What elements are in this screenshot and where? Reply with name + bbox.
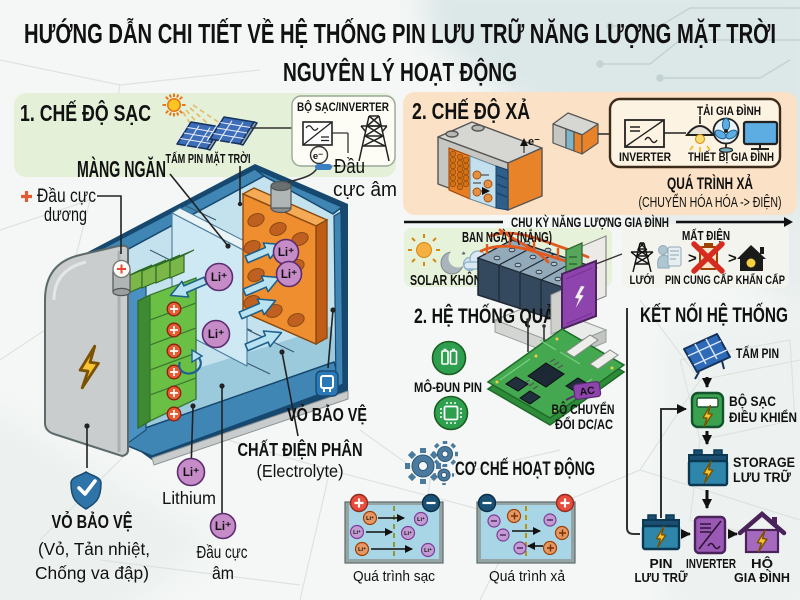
svg-text:THIẾT BỊ GIA ĐÌNH: THIẾT BỊ GIA ĐÌNH <box>688 149 774 164</box>
svg-text:CHU KỲ NĂNG LƯỢNG GIA ĐÌNH: CHU KỲ NĂNG LƯỢNG GIA ĐÌNH <box>511 215 669 230</box>
svg-text:LƯU TRỮ: LƯU TRỮ <box>733 470 792 485</box>
svg-text:BỘ SẠC: BỘ SẠC <box>729 394 776 409</box>
svg-text:e⁻: e⁻ <box>528 136 540 148</box>
svg-text:Đầu cực: Đầu cực <box>197 542 248 562</box>
svg-text:STORAGE: STORAGE <box>733 455 795 470</box>
svg-text:Li⁺: Li⁺ <box>208 329 224 341</box>
svg-text:BỘ CHUYỂN: BỘ CHUYỂN <box>552 400 615 417</box>
svg-text:MÀNG NGĂN: MÀNG NGĂN <box>77 155 166 182</box>
svg-text:(Vỏ, Tản nhiệt,: (Vỏ, Tản nhiệt, <box>38 539 150 559</box>
svg-text:AC: AC <box>579 384 596 398</box>
svg-text:Li⁺: Li⁺ <box>358 546 366 553</box>
svg-text:INVERTER: INVERTER <box>619 150 671 164</box>
svg-text:(Electrolyte): (Electrolyte) <box>257 461 344 481</box>
svg-text:NGUYÊN LÝ HOẠT ĐỘNG: NGUYÊN LÝ HOẠT ĐỘNG <box>283 57 517 87</box>
svg-text:Li⁺: Li⁺ <box>215 521 231 533</box>
svg-text:Quá trình xả: Quá trình xả <box>489 569 566 585</box>
svg-text:LƯỚI: LƯỚI <box>630 272 655 287</box>
svg-text:VỎ BẢO VỆ: VỎ BẢO VỆ <box>287 404 367 425</box>
svg-text:Lithium: Lithium <box>162 488 216 508</box>
svg-text:INVERTER: INVERTER <box>686 557 736 571</box>
svg-text:dương: dương <box>44 205 87 226</box>
svg-text:Li⁺: Li⁺ <box>281 269 297 281</box>
svg-text:Li⁺: Li⁺ <box>353 529 361 536</box>
svg-text:Li⁺: Li⁺ <box>366 515 374 522</box>
svg-text:Li⁺: Li⁺ <box>183 467 199 479</box>
svg-text:HƯỚNG DẪN CHI TIẾT VỀ HỆ THỐNG: HƯỚNG DẪN CHI TIẾT VỀ HỆ THỐNG PIN LƯU T… <box>24 17 776 49</box>
svg-text:1. CHẾ ĐỘ SẠC: 1. CHẾ ĐỘ SẠC <box>20 99 151 126</box>
svg-text:CHẤT ĐIỆN PHÂN: CHẤT ĐIỆN PHÂN <box>238 439 363 460</box>
svg-text:HỘ: HỘ <box>751 556 773 571</box>
svg-text:CƠ CHẾ HOẠT ĐỘNG: CƠ CHẾ HOẠT ĐỘNG <box>455 458 595 480</box>
svg-text:QUÁ TRÌNH XẢ: QUÁ TRÌNH XẢ <box>667 174 753 193</box>
svg-text:Li⁺: Li⁺ <box>211 272 227 284</box>
svg-text:Đầu cực: Đầu cực <box>37 186 96 207</box>
svg-text:e⁻: e⁻ <box>313 151 323 162</box>
svg-text:BAN NGÀY (NẮNG): BAN NGÀY (NẮNG) <box>462 228 552 246</box>
svg-text:Li⁺: Li⁺ <box>278 247 294 259</box>
svg-text:BỘ SẠC/INVERTER: BỘ SẠC/INVERTER <box>297 99 389 114</box>
svg-text:>: > <box>728 250 737 267</box>
svg-text:cực âm: cực âm <box>333 179 397 201</box>
svg-text:ĐIỀU KHIỂN: ĐIỀU KHIỂN <box>729 410 797 425</box>
svg-text:(CHUYỂN HÓA HÓA -> ĐIỆN): (CHUYỂN HÓA HÓA -> ĐIỆN) <box>639 193 782 211</box>
svg-text:Quá trình sạc: Quá trình sạc <box>353 569 435 585</box>
svg-text:KẾT NỐI HỆ THỐNG: KẾT NỐI HỆ THỐNG <box>640 303 788 327</box>
svg-text:VỎ BẢO VỆ: VỎ BẢO VỆ <box>52 511 133 532</box>
svg-text:GIA ĐÌNH: GIA ĐÌNH <box>734 570 790 585</box>
svg-text:2. CHẾ ĐỘ XẢ: 2. CHẾ ĐỘ XẢ <box>412 96 530 124</box>
svg-text:ĐỔI DC/AC: ĐỔI DC/AC <box>555 415 613 432</box>
svg-text:TẤM PIN: TẤM PIN <box>736 346 779 361</box>
svg-text:PIN CUNG CẤP KHẨN CẤP: PIN CUNG CẤP KHẨN CẤP <box>665 272 785 287</box>
svg-text:PIN: PIN <box>650 557 673 571</box>
svg-text:Đầu: Đầu <box>334 156 365 178</box>
svg-text:Li⁺: Li⁺ <box>424 547 432 554</box>
svg-text:Li⁺: Li⁺ <box>404 530 412 537</box>
svg-text:>: > <box>688 250 697 267</box>
svg-text:Chống va đập): Chống va đập) <box>35 563 149 583</box>
svg-text:TẢI GIA ĐÌNH: TẢI GIA ĐÌNH <box>697 103 761 118</box>
svg-text:âm: âm <box>212 563 234 583</box>
svg-text:TẤM PIN MẶT TRỜI: TẤM PIN MẶT TRỜI <box>166 151 251 166</box>
svg-text:MẤT ĐIỆN: MẤT ĐIỆN <box>682 228 730 243</box>
svg-text:MÔ-ĐUN PIN: MÔ-ĐUN PIN <box>414 378 482 395</box>
svg-text:LƯU TRỮ: LƯU TRỮ <box>635 570 689 585</box>
svg-text:Li⁺: Li⁺ <box>417 516 425 523</box>
